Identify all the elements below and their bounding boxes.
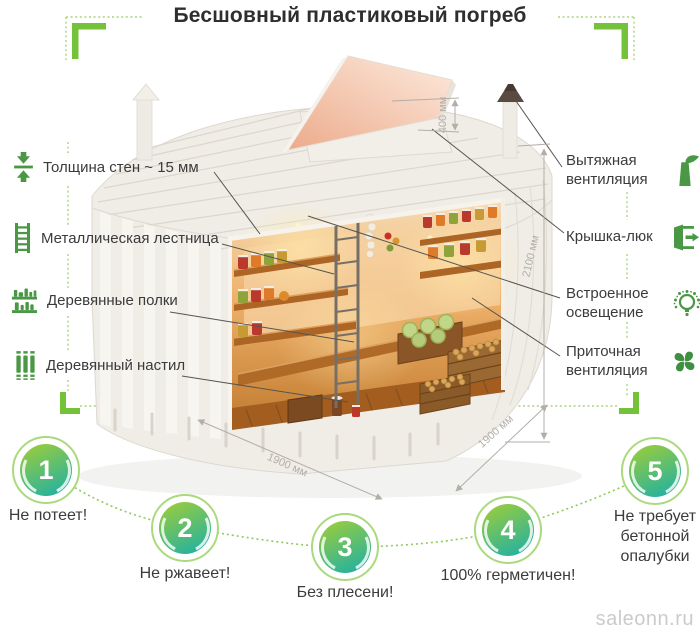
benefit-label-2: Не ржавеет! [129, 564, 241, 584]
wall-thickness-icon [13, 152, 34, 182]
feature-label: Толщина стен ~ 15 мм [43, 159, 199, 176]
benefit-ring: 1 [12, 436, 80, 504]
benefit-label-1: Не потеет! [0, 506, 104, 526]
feature-label: Металлическая лестница [41, 230, 219, 247]
feature-label: Деревянные полки [47, 292, 178, 309]
feature-exhaust-ventilation: Вытяжная вентиляция [566, 148, 699, 192]
exhaust-ventilation-icon [672, 155, 699, 186]
benefit-ring: 5 [621, 437, 689, 505]
benefit-number: 2 [177, 513, 192, 544]
benefit-number: 5 [647, 456, 662, 487]
benefit-label-3: Без плесени! [287, 583, 403, 603]
feature-built-in-lighting: Встроенное освещение [566, 281, 700, 325]
benefit-circle-2: 2 [151, 494, 219, 562]
benefit-number: 4 [500, 515, 515, 546]
benefit-circle-5: 5 [621, 437, 689, 505]
wooden-floor-icon [14, 351, 37, 380]
built-in-lighting-icon [672, 288, 700, 318]
feature-supply-ventilation: Приточная вентиляция [566, 339, 697, 383]
feature-label: Встроенное освещение [566, 284, 660, 323]
feature-label: Приточная вентиляция [566, 342, 660, 381]
infographic: 400 мм 2100 мм 1900 мм 1900 мм Бесшовный… [0, 0, 700, 640]
benefit-circle-1: 1 [12, 436, 80, 504]
feature-metal-ladder: Металлическая лестница [13, 220, 219, 256]
hatch-lid-icon [672, 224, 699, 251]
supply-ventilation-icon [672, 349, 697, 374]
feature-wall-thickness: Толщина стен ~ 15 мм [13, 149, 199, 185]
feature-hatch-lid: Крышка-люк [566, 215, 699, 259]
dimension-hatch: 400 мм [437, 97, 449, 134]
benefit-circle-4: 4 [474, 496, 542, 564]
feature-wooden-shelves: Деревянные полки [11, 282, 178, 318]
feature-label: Вытяжная вентиляция [566, 151, 660, 190]
benefit-label-4: 100% герметичен! [428, 566, 588, 586]
benefit-circle-3: 3 [311, 513, 379, 581]
wooden-shelves-icon [11, 287, 38, 314]
feature-label: Крышка-люк [566, 227, 660, 247]
benefit-ring: 3 [311, 513, 379, 581]
benefit-ring: 2 [151, 494, 219, 562]
cellar-interior [228, 197, 522, 430]
benefit-label-5: Не требует бетонной опалубки [606, 507, 700, 567]
feature-label: Деревянный настил [46, 357, 185, 374]
watermark: saleonn.ru [596, 608, 694, 631]
benefit-ring: 4 [474, 496, 542, 564]
feature-wooden-floor: Деревянный настил [14, 347, 185, 383]
page-title: Бесшовный пластиковый погреб [0, 4, 700, 28]
metal-ladder-icon [13, 223, 32, 253]
benefit-number: 1 [38, 455, 53, 486]
benefit-number: 3 [337, 532, 352, 563]
